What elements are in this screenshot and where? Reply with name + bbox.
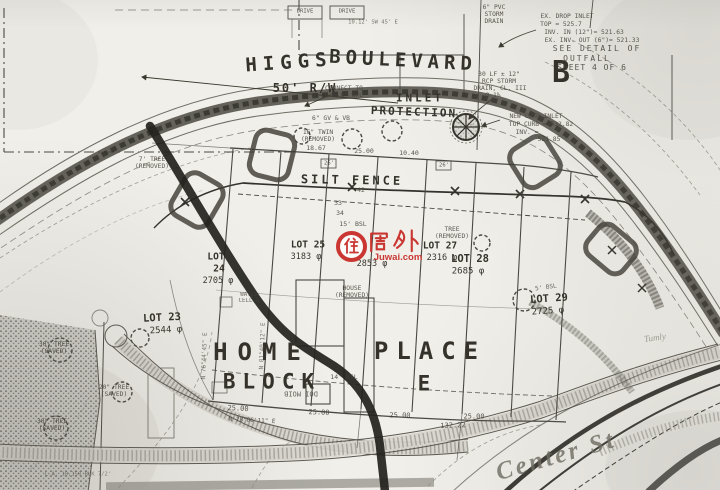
juwai-logo-icon [336, 231, 367, 262]
silt-fence [154, 183, 674, 392]
juwai-watermark: Juwai.com 居外 住 [332, 228, 442, 268]
tree-icon [474, 235, 490, 251]
tree-icon [294, 128, 310, 144]
boulevard-road [0, 78, 720, 356]
inlet-protection-icon [450, 111, 482, 143]
juwai-brand-glyph [371, 230, 418, 251]
house-footprints [212, 280, 374, 412]
juwai-site-label: Juwai.com [369, 252, 427, 263]
juwai-symbol-glyph [345, 239, 358, 254]
site-plan-drawing: HIGGSBOULEVARD50' R/WBINLETPROTECTIONSIL… [0, 0, 720, 490]
tree-icon [342, 129, 362, 149]
tree-icon [382, 121, 402, 141]
